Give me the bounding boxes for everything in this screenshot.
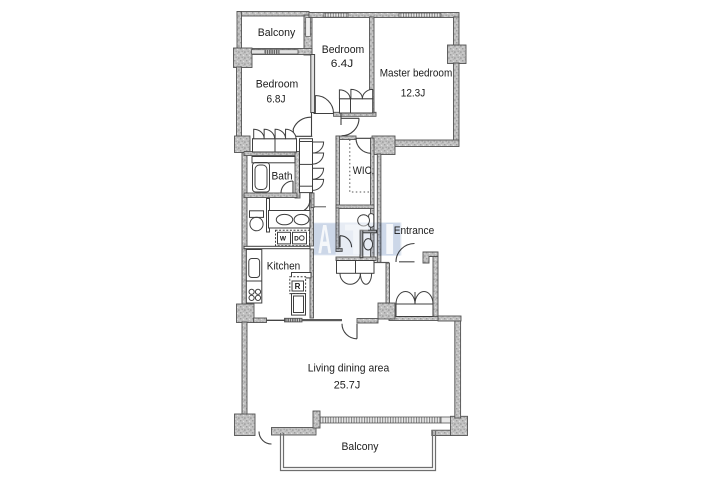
svg-text:D: D <box>294 236 299 243</box>
svg-text:R: R <box>295 282 301 291</box>
svg-text:12.3J: 12.3J <box>401 88 426 100</box>
svg-text:Balcony: Balcony <box>342 441 380 453</box>
svg-text:6.8J: 6.8J <box>267 94 286 106</box>
svg-text:25.7J: 25.7J <box>334 380 361 392</box>
svg-text:W: W <box>280 236 287 243</box>
svg-text:Master bedroom: Master bedroom <box>380 68 453 80</box>
svg-text:Kitchen: Kitchen <box>267 261 301 273</box>
svg-text:6.4J: 6.4J <box>331 58 354 70</box>
svg-text:A: A <box>318 216 332 262</box>
svg-text:WIC.: WIC. <box>353 165 375 177</box>
svg-text:Bedroom: Bedroom <box>322 44 365 56</box>
svg-text:Entrance: Entrance <box>394 225 435 237</box>
svg-text:Living dining area: Living dining area <box>308 362 390 374</box>
svg-text:Bath: Bath <box>272 170 293 182</box>
svg-text:Bedroom: Bedroom <box>256 78 299 90</box>
svg-text:Balcony: Balcony <box>258 27 296 39</box>
